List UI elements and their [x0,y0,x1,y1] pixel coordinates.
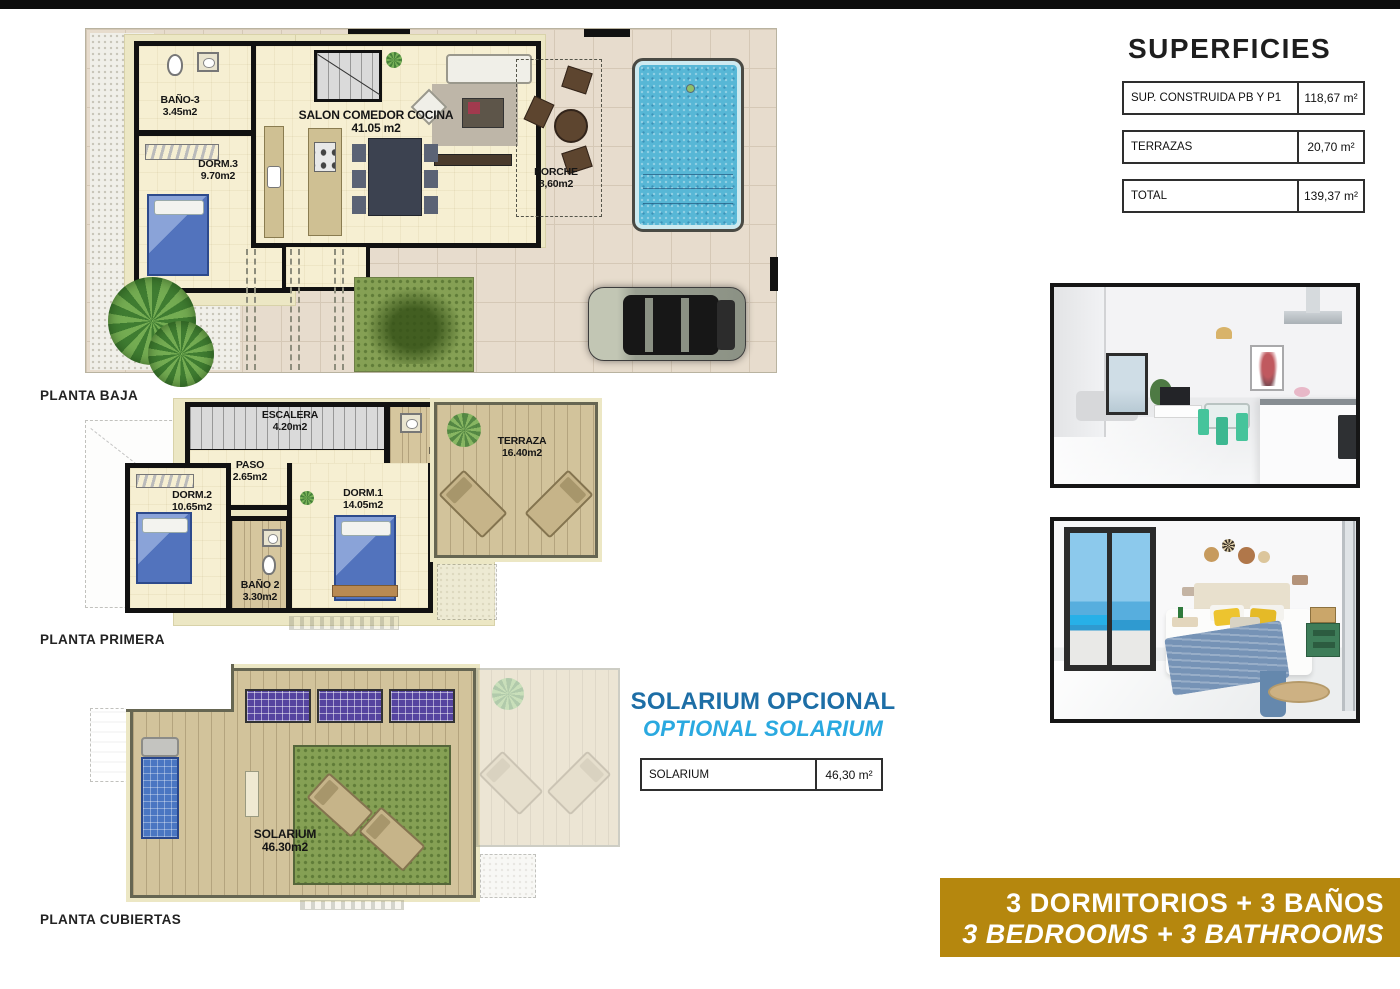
decor-icon [468,102,480,114]
banner-line-es: 3 DORMITORIOS + 3 BAÑOS [940,888,1384,919]
dining-chair-icon [352,144,366,162]
solarium-row-label: SOLARIUM [642,760,815,789]
sun-lounger-icon [524,469,593,538]
superficies-row-terrazas: TERRAZAS 20,70 m² [1122,130,1365,164]
banner-line-en: 3 BEDROOMS + 3 BATHROOMS [940,919,1384,950]
sink-icon [197,52,219,72]
wall-decor-icon [1258,551,1270,563]
room-label-dorm2: DORM.210.65m2 [157,490,227,514]
breakfast-tray [1172,617,1198,627]
floor-title-planta-primera: PLANTA PRIMERA [40,632,165,647]
palm-tree-icon [148,321,214,387]
wall-decor-icon [1238,547,1255,564]
artwork-palm [1250,345,1284,391]
room-label-salon: SALON COMEDOR COCINA41.05 m2 [286,109,466,136]
sun-lounger-icon [438,469,507,538]
nightstand [1306,623,1340,657]
dining-chair-icon [352,170,366,188]
solarium-deck [130,668,476,898]
superficies-row-value: 118,67 m² [1297,83,1363,113]
solarium-grass [293,745,451,885]
room-dorm2 [125,463,231,613]
wall-lamp [1292,575,1308,585]
car-icon [588,287,746,361]
superficies-row-label: TERRAZAS [1124,132,1297,162]
solarium-row: SOLARIUM 46,30 m² [640,758,883,791]
dining-chair-icon [352,196,366,214]
floor-plan-planta-baja: BAÑO-33.45m2 DORM.39.70m2 SALON COME [85,28,777,373]
window-frame [1064,527,1156,671]
swimming-pool [635,61,741,229]
dining-chair-icon [424,144,438,162]
plant-icon [447,413,481,447]
wall-decor-icon [1204,547,1219,562]
feature-banner: 3 DORMITORIOS + 3 BAÑOS 3 BEDROOMS + 3 B… [940,878,1400,957]
solarium-title-es: SOLARIUM OPCIONAL [618,688,908,716]
solarium-title-en: OPTIONAL SOLARIUM [618,716,908,742]
bench-icon [332,585,398,597]
wardrobe-icon [136,474,194,488]
toilet-icon [167,54,183,76]
boundary-wall [584,29,630,37]
superficies-row-label: TOTAL [1124,181,1297,211]
terrace-below-ghost [437,564,497,620]
superficies-title: SUPERFICIES [1128,33,1331,65]
room-label-bano3: BAÑO-33.45m2 [140,95,220,119]
oven [1338,415,1360,459]
bed-icon [136,512,192,584]
hood-chimney [1306,287,1320,313]
superficies-row-label: SUP. CONSTRUIDA PB Y P1 [1124,83,1297,113]
flowers [1294,387,1310,397]
plant-icon [386,52,402,68]
room-salon [251,41,541,248]
floor-plan-planta-cubiertas: SOLARIUM46.30m2 [90,660,620,910]
garden-grass [354,277,474,372]
pool-drain-icon [686,84,695,93]
room-label-solarium: SOLARIUM46.30m2 [230,828,340,855]
tv [1160,387,1190,405]
green-chair [1236,413,1248,441]
room-label-dorm1: DORM.114.05m2 [323,488,403,512]
room-terraza [434,402,598,558]
green-bottle [1178,607,1183,618]
window-frame [1106,353,1148,415]
kitchen-sink-icon [267,166,281,188]
deck-gate [245,771,259,817]
bed-icon [147,194,209,276]
tv-cabinet [1154,405,1202,418]
floor-plan-planta-primera: ESCALERA4.20m2 PASO2.65m2 BAÑO 13.45m2 D… [85,398,630,630]
solar-panel-icon [245,689,311,723]
sun-mattress-pillow [141,737,179,757]
room-bano3 [134,41,256,135]
photo-bedroom [1050,517,1360,723]
sink-icon [400,413,422,433]
photo-living-kitchen [1050,283,1360,488]
pendant-lamp [1216,327,1232,339]
boundary-wall [770,257,778,291]
green-chair [1216,417,1228,445]
green-chair [1198,409,1209,435]
pool-steps [643,174,733,175]
porch-outline [516,59,602,217]
entry-steps-ghost [289,616,399,630]
cooktop-icon [314,142,336,172]
tv-cabinet-icon [434,154,512,166]
wall-decor-icon [1222,539,1235,552]
pool-steps [643,188,733,189]
room-label-dorm3: DORM.39.70m2 [178,159,258,183]
wardrobe-mirror [1342,521,1360,711]
floor-title-planta-cubiertas: PLANTA CUBIERTAS [40,912,181,927]
solarium-row-value: 46,30 m² [815,760,881,789]
photo-frame [1310,607,1336,623]
room-label-terraza: TERRAZA16.40m2 [477,436,567,460]
room-label-escalera: ESCALERA4.20m2 [235,410,345,434]
solar-panel-icon [317,689,383,723]
dining-chair-icon [424,196,438,214]
solar-panel-icon [389,689,455,723]
jute-rug [1268,681,1330,703]
plant-icon [300,491,314,505]
room-dorm1 [287,463,433,613]
dining-table-icon [368,138,422,216]
sink-icon [262,529,282,547]
room-label-bano2: BAÑO 23.30m2 [225,580,295,604]
superficies-row-value: 139,37 m² [1297,181,1363,211]
entry-steps-ghost [300,900,404,910]
superficies-row-total: TOTAL 139,37 m² [1122,179,1365,213]
superficies-row-construida: SUP. CONSTRUIDA PB Y P1 118,67 m² [1122,81,1365,115]
pool-steps [643,203,733,204]
stair-outline-ghost [90,708,134,782]
plant-icon [492,678,524,710]
pillow-icon [154,200,205,215]
solarium-section: SOLARIUM OPCIONAL OPTIONAL SOLARIUM [618,688,908,742]
top-border [0,0,1400,9]
sun-mattress-icon [141,757,179,839]
terrace-ghost [476,668,620,898]
deck-notch [126,664,234,712]
driveway [238,249,350,370]
superficies-row-value: 20,70 m² [1297,132,1363,162]
toilet-icon [262,555,276,575]
dining-chair-icon [424,170,438,188]
